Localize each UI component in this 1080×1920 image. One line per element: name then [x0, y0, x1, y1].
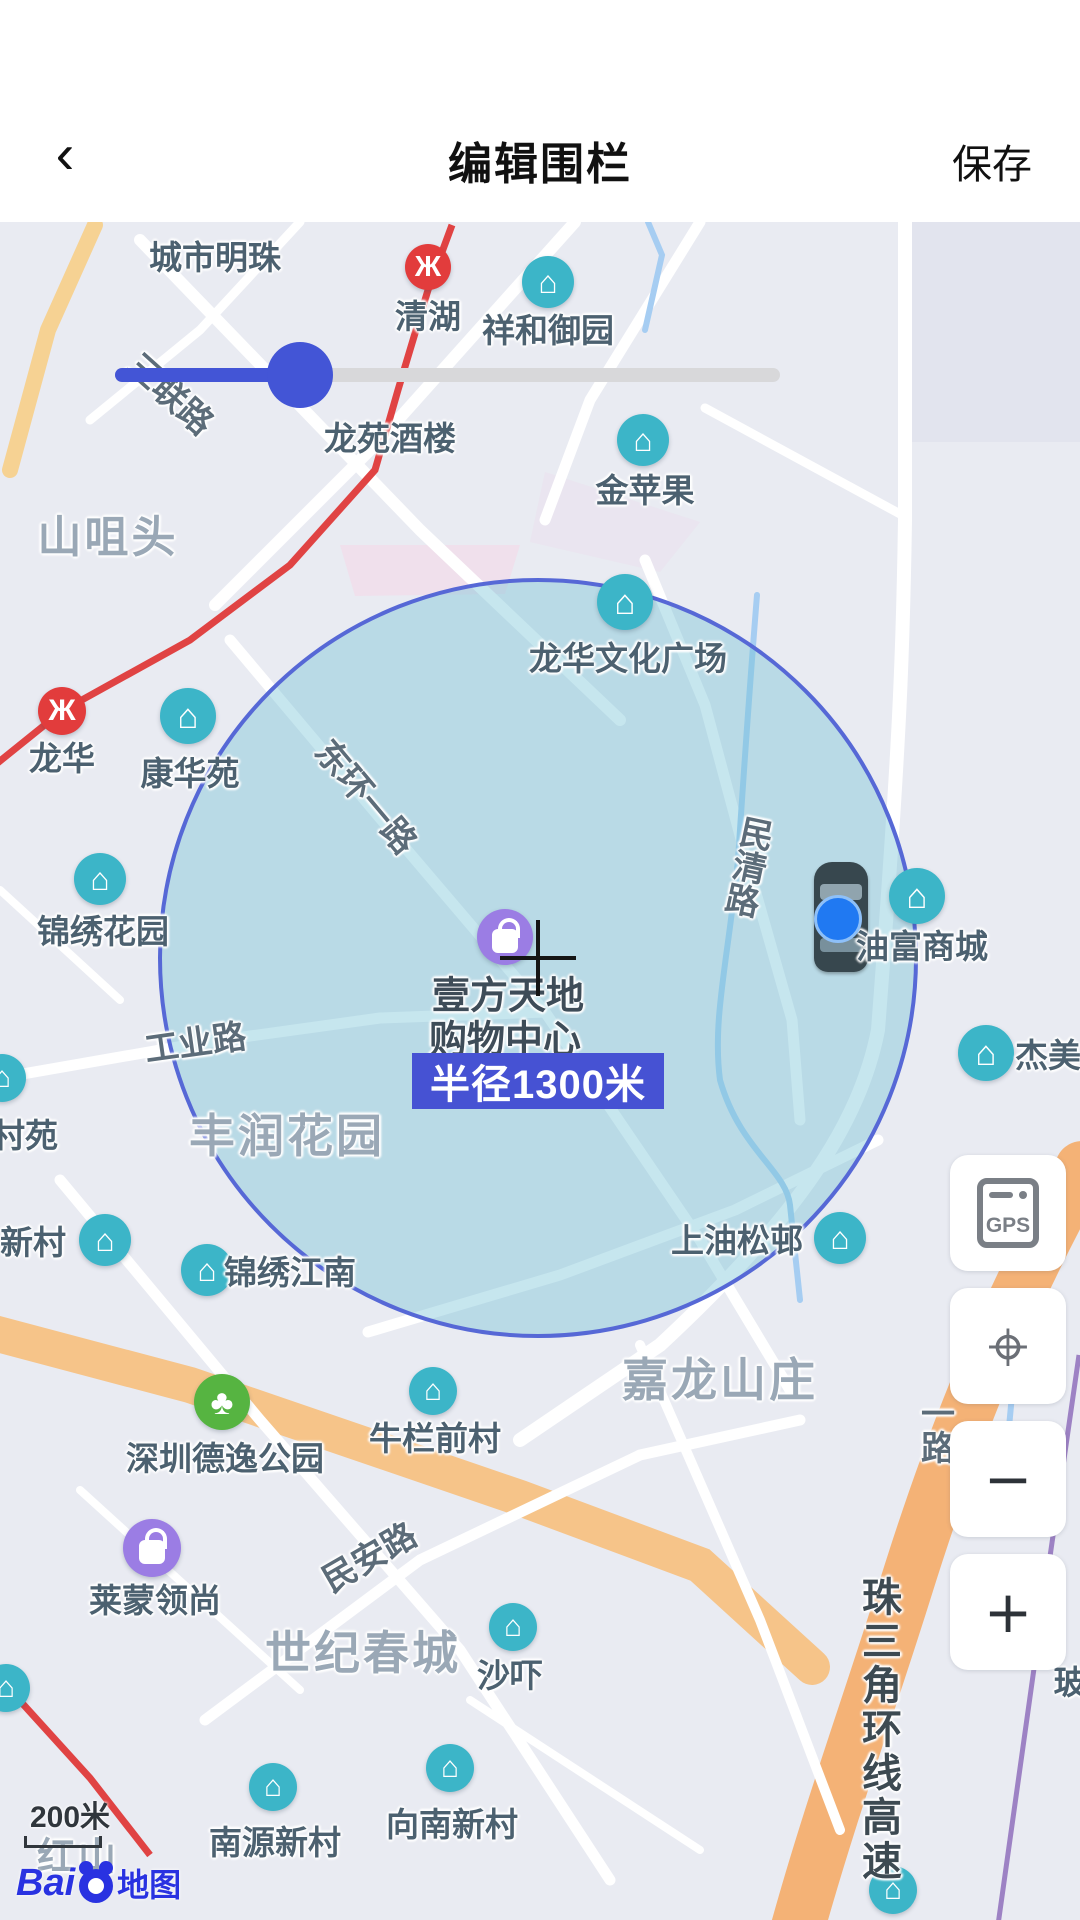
map-label: 上油松邨 [671, 1214, 803, 1262]
building-poi-icon: ⌂ [426, 1744, 474, 1792]
map-label: 新村 [0, 1216, 66, 1264]
map-label: 珠三角环线高速 [849, 1576, 907, 1884]
building-poi-icon: ⌂ [814, 1212, 866, 1264]
building-poi-icon: ⌂ [597, 574, 653, 630]
radius-slider[interactable] [0, 332, 1080, 422]
building-poi-icon: ⌂ [489, 1603, 537, 1651]
map-label: 清湖 [395, 290, 461, 338]
map-label: 牛栏前村 [369, 1412, 501, 1460]
scale-bar [24, 1836, 102, 1848]
building-poi-icon: ⌂ [79, 1214, 131, 1266]
map-label: 康华苑 [141, 747, 240, 795]
map-label: 深圳德逸公园 [126, 1432, 324, 1480]
map-label: 金苹果 [596, 464, 695, 512]
radius-value-badge: 半径1300米 [412, 1053, 664, 1109]
map-label: 杰美 [1015, 1029, 1080, 1077]
map-label: 村苑 [0, 1109, 58, 1157]
baidu-logo-text: Bai [16, 1862, 75, 1905]
slider-thumb[interactable] [267, 342, 333, 408]
map-label: 龙华 [29, 732, 95, 780]
map-scale: 200米 [24, 1792, 110, 1848]
map-center-crosshair-icon [500, 920, 576, 996]
map-label: 锦绣江南 [224, 1246, 356, 1294]
metro-poi-icon: Ж [38, 687, 86, 735]
building-poi-icon: ⌂ [522, 256, 574, 308]
metro-poi-icon: Ж [405, 244, 451, 290]
map-canvas[interactable]: 半径1300米 GPS ⌖ − + 200米 Bai 地图 城市明珠清湖祥和御园… [0, 222, 1080, 1920]
map-attribution: Bai 地图 [16, 1860, 181, 1906]
baidu-map-wordmark: 地图 [117, 1860, 181, 1906]
zoom-in-button[interactable]: + [950, 1554, 1066, 1670]
map-label: 山咀头 [38, 501, 179, 565]
locate-button[interactable]: ⌖ [950, 1288, 1066, 1404]
map-label: 世纪春城 [265, 1617, 461, 1683]
map-label: 沙吓 [477, 1649, 543, 1697]
building-poi-icon: ⌂ [160, 688, 216, 744]
baidu-bear-icon [79, 1869, 113, 1903]
map-label: 向南新村 [386, 1798, 518, 1846]
map-label: 锦绣花园 [37, 905, 169, 953]
map-label: 莱蒙领尚 [89, 1574, 221, 1622]
current-location-dot [814, 895, 862, 943]
map-label: 嘉龙山庄 [622, 1344, 818, 1410]
building-poi-icon: ⌂ [249, 1763, 297, 1811]
header-bar: ‹ 编辑围栏 保存 [0, 0, 1080, 222]
map-label: 城市明珠 [149, 231, 281, 279]
gps-button[interactable]: GPS [950, 1155, 1066, 1271]
minus-icon: − [984, 1450, 1033, 1508]
map-label: 龙华文化广场 [529, 632, 727, 680]
locate-target-icon: ⌖ [988, 1310, 1029, 1382]
shop-poi-icon [123, 1519, 181, 1577]
map-label: 油富商城 [856, 920, 988, 968]
building-poi-icon: ⌂ [409, 1367, 457, 1415]
building-poi-icon: ⌂ [74, 853, 126, 905]
page-title: 编辑围栏 [0, 128, 1080, 192]
map-label: 丰润花园 [189, 1100, 385, 1166]
zoom-out-button[interactable]: − [950, 1421, 1066, 1537]
geofence-edit-screen: ‹ 编辑围栏 保存 [0, 0, 1080, 1920]
building-poi-icon: ⌂ [889, 868, 945, 924]
save-button[interactable]: 保存 [952, 132, 1032, 190]
building-poi-icon: ⌂ [958, 1025, 1014, 1081]
park-poi-icon: ♣ [194, 1374, 250, 1430]
gps-icon: GPS [977, 1178, 1039, 1248]
map-label: 南源新村 [209, 1816, 341, 1864]
plus-icon: + [984, 1583, 1033, 1641]
scale-label: 200米 [30, 1792, 110, 1836]
